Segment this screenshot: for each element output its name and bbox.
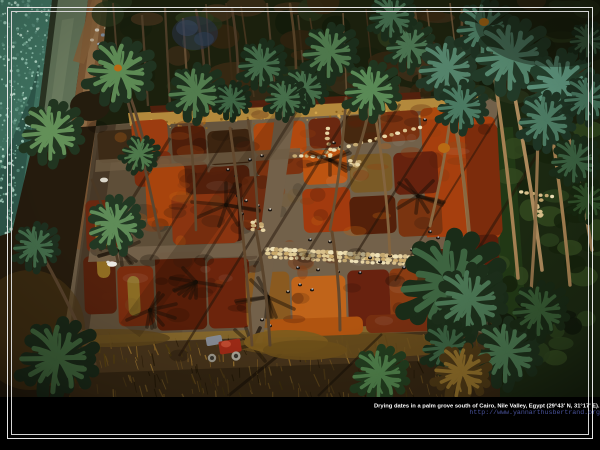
svg-text:http://www.yannarthusbertrand.: http://www.yannarthusbertrand.org [469,409,600,416]
